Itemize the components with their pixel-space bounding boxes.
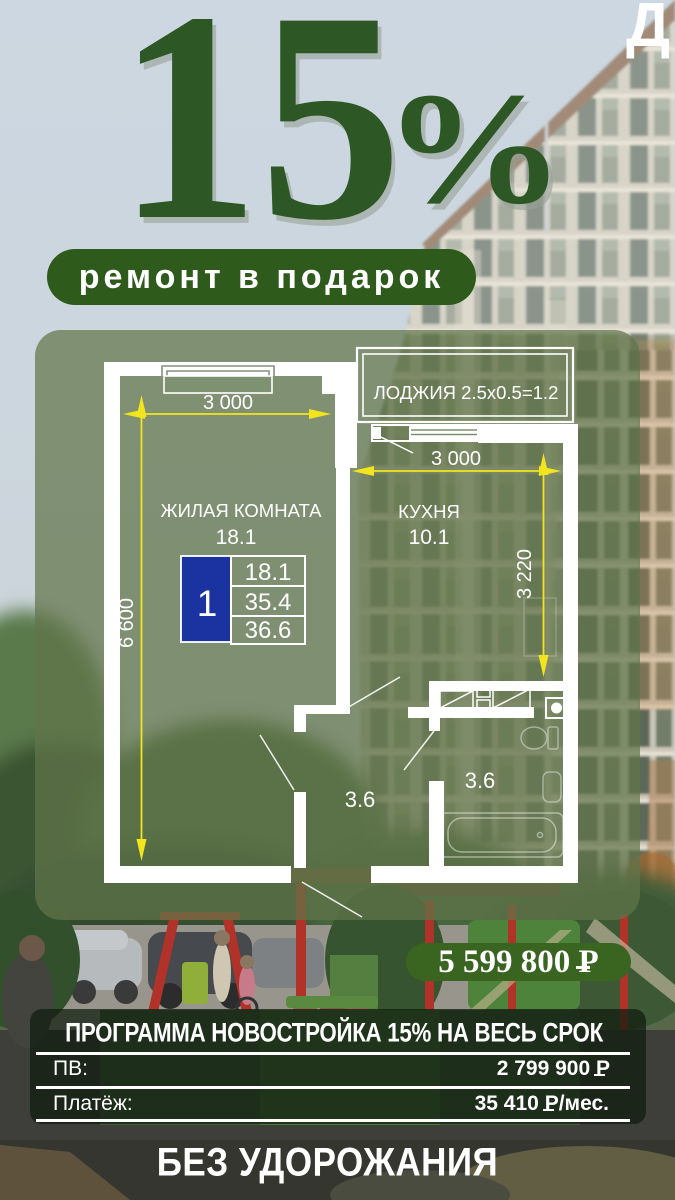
svg-text:35.4: 35.4 <box>245 589 292 616</box>
svg-text:36.6: 36.6 <box>245 617 292 644</box>
svg-text:6 600: 6 600 <box>116 598 138 648</box>
svg-text:1: 1 <box>197 583 218 624</box>
svg-text:3 000: 3 000 <box>203 392 253 414</box>
svg-text:ЛОДЖИЯ 2.5x0.5=1.2: ЛОДЖИЯ 2.5x0.5=1.2 <box>374 382 559 403</box>
svg-text:ЖИЛАЯ КОМНАТА: ЖИЛАЯ КОМНАТА <box>160 500 322 521</box>
svg-text:10.1: 10.1 <box>409 526 450 549</box>
svg-text:3 220: 3 220 <box>514 549 536 599</box>
svg-text:3 000: 3 000 <box>431 448 481 470</box>
svg-text:18.1: 18.1 <box>216 526 257 549</box>
svg-text:3.6: 3.6 <box>465 768 496 793</box>
svg-text:3.6: 3.6 <box>345 787 376 812</box>
svg-text:18.1: 18.1 <box>245 559 292 586</box>
svg-text:КУХНЯ: КУХНЯ <box>398 501 460 522</box>
